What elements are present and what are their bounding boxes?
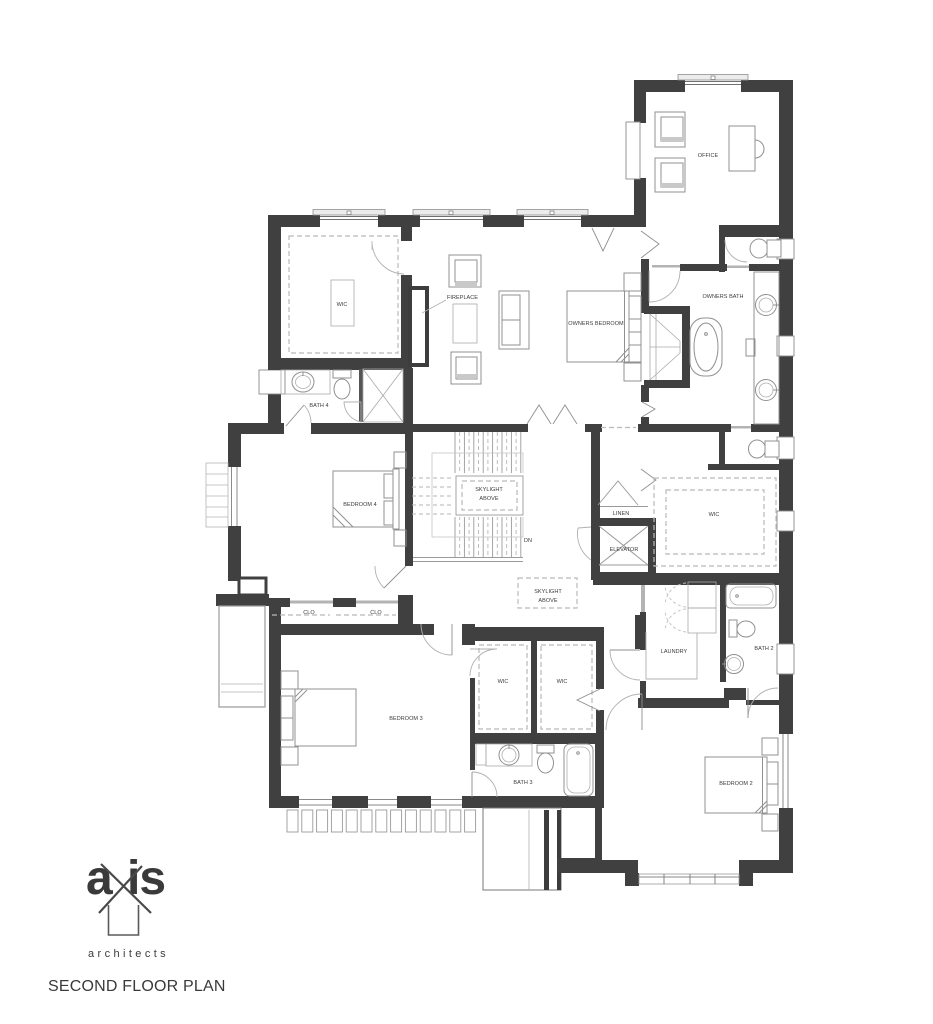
svg-text:WIC: WIC <box>498 679 509 685</box>
svg-text:ABOVE: ABOVE <box>479 496 498 502</box>
svg-text:ELEVATOR: ELEVATOR <box>610 547 639 553</box>
svg-text:LINEN: LINEN <box>613 511 629 517</box>
svg-text:BATH 3: BATH 3 <box>513 780 532 786</box>
svg-text:SECOND FLOOR PLAN: SECOND FLOOR PLAN <box>48 978 226 995</box>
svg-text:WIC: WIC <box>557 679 568 685</box>
svg-text:SKYLIGHT: SKYLIGHT <box>475 487 503 493</box>
svg-text:ABOVE: ABOVE <box>538 598 557 604</box>
svg-text:FIREPLACE: FIREPLACE <box>447 295 478 301</box>
svg-text:CLO: CLO <box>303 610 315 616</box>
svg-text:DN: DN <box>524 538 532 544</box>
svg-text:architects: architects <box>88 948 169 960</box>
svg-text:BEDROOM 3: BEDROOM 3 <box>389 716 422 722</box>
svg-text:SKYLIGHT: SKYLIGHT <box>534 589 562 595</box>
svg-text:WIC: WIC <box>337 302 348 308</box>
svg-text:CLO: CLO <box>370 610 382 616</box>
svg-text:BATH 2: BATH 2 <box>754 646 773 652</box>
svg-text:a: a <box>86 852 113 905</box>
svg-text:OWNERS BATH: OWNERS BATH <box>702 294 743 300</box>
svg-text:OFFICE: OFFICE <box>698 153 719 159</box>
svg-text:BEDROOM 4: BEDROOM 4 <box>343 502 376 508</box>
svg-text:LAUNDRY: LAUNDRY <box>661 649 688 655</box>
svg-text:WIC: WIC <box>709 512 720 518</box>
svg-text:is: is <box>127 852 165 905</box>
svg-text:OWNERS BEDROOM: OWNERS BEDROOM <box>568 321 624 327</box>
svg-text:BATH 4: BATH 4 <box>309 403 328 409</box>
svg-text:BEDROOM 2: BEDROOM 2 <box>719 781 752 787</box>
